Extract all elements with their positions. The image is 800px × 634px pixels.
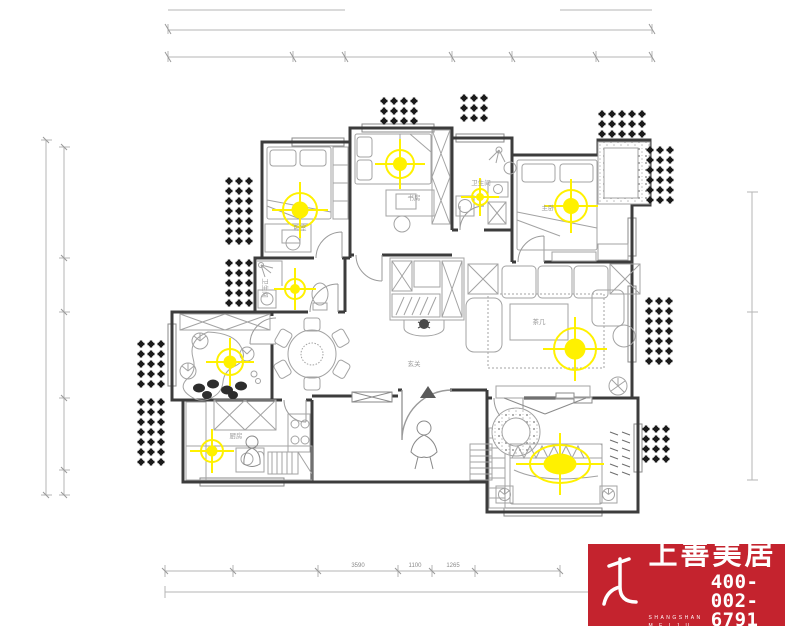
- brand-logo-glyph-icon: [597, 554, 641, 616]
- shrub-cluster: [646, 298, 673, 365]
- shrub-cluster: [461, 95, 488, 122]
- living-room-furniture: [466, 264, 640, 414]
- hall-cabinet: [390, 258, 464, 336]
- ceiling-light: [206, 338, 254, 386]
- brand-logo: 上善美居 SHANGSHAN M E I J U 400-002-6791: [588, 544, 785, 626]
- shrub-cluster: [226, 260, 253, 307]
- dimension-lines: [41, 10, 758, 598]
- phone-number: 400-002-6791: [711, 573, 777, 630]
- dimension-number: 1265: [446, 563, 460, 569]
- shrub-cluster: [643, 426, 670, 463]
- ceiling-light: [190, 429, 234, 473]
- brand-subtitle: SHANGSHAN M E I J U: [649, 615, 703, 630]
- ceiling-light: [274, 268, 316, 310]
- kitchen-furniture: [186, 400, 312, 480]
- room-label: 卫生间: [471, 178, 491, 187]
- shrub-cluster: [381, 98, 418, 125]
- room-label: 卧室: [294, 223, 308, 232]
- room-label: 卫生间: [261, 278, 270, 298]
- shrub-cluster: [138, 399, 165, 466]
- room-label: 玄关: [408, 359, 422, 368]
- room-label: 茶几: [533, 317, 547, 326]
- floor-plan-page: 卧室书房卫生间主卧玄关厨房茶几卫生间 359011001265 上善美居 SHA…: [0, 0, 800, 634]
- dimension-number: 3590: [351, 563, 365, 569]
- room-label: 厨房: [230, 431, 243, 440]
- dining-furniture: [273, 318, 351, 390]
- shrub-cluster: [138, 341, 165, 388]
- shrub-cluster: [226, 178, 253, 245]
- dimension-number: 1100: [409, 563, 423, 569]
- furniture: [180, 130, 650, 508]
- entry-furniture: [411, 386, 492, 480]
- ceiling-light: [543, 317, 607, 381]
- brand-name: 上善美居: [649, 540, 777, 572]
- room-label: 主卧: [542, 203, 556, 212]
- room-label: 书房: [408, 193, 421, 202]
- ceiling-light: [375, 139, 425, 189]
- bedroom1-furniture: [265, 147, 348, 252]
- bedroom2-furniture: [355, 130, 450, 232]
- dimension-text-layer: 359011001265: [351, 563, 460, 569]
- shrub-cluster: [599, 111, 646, 138]
